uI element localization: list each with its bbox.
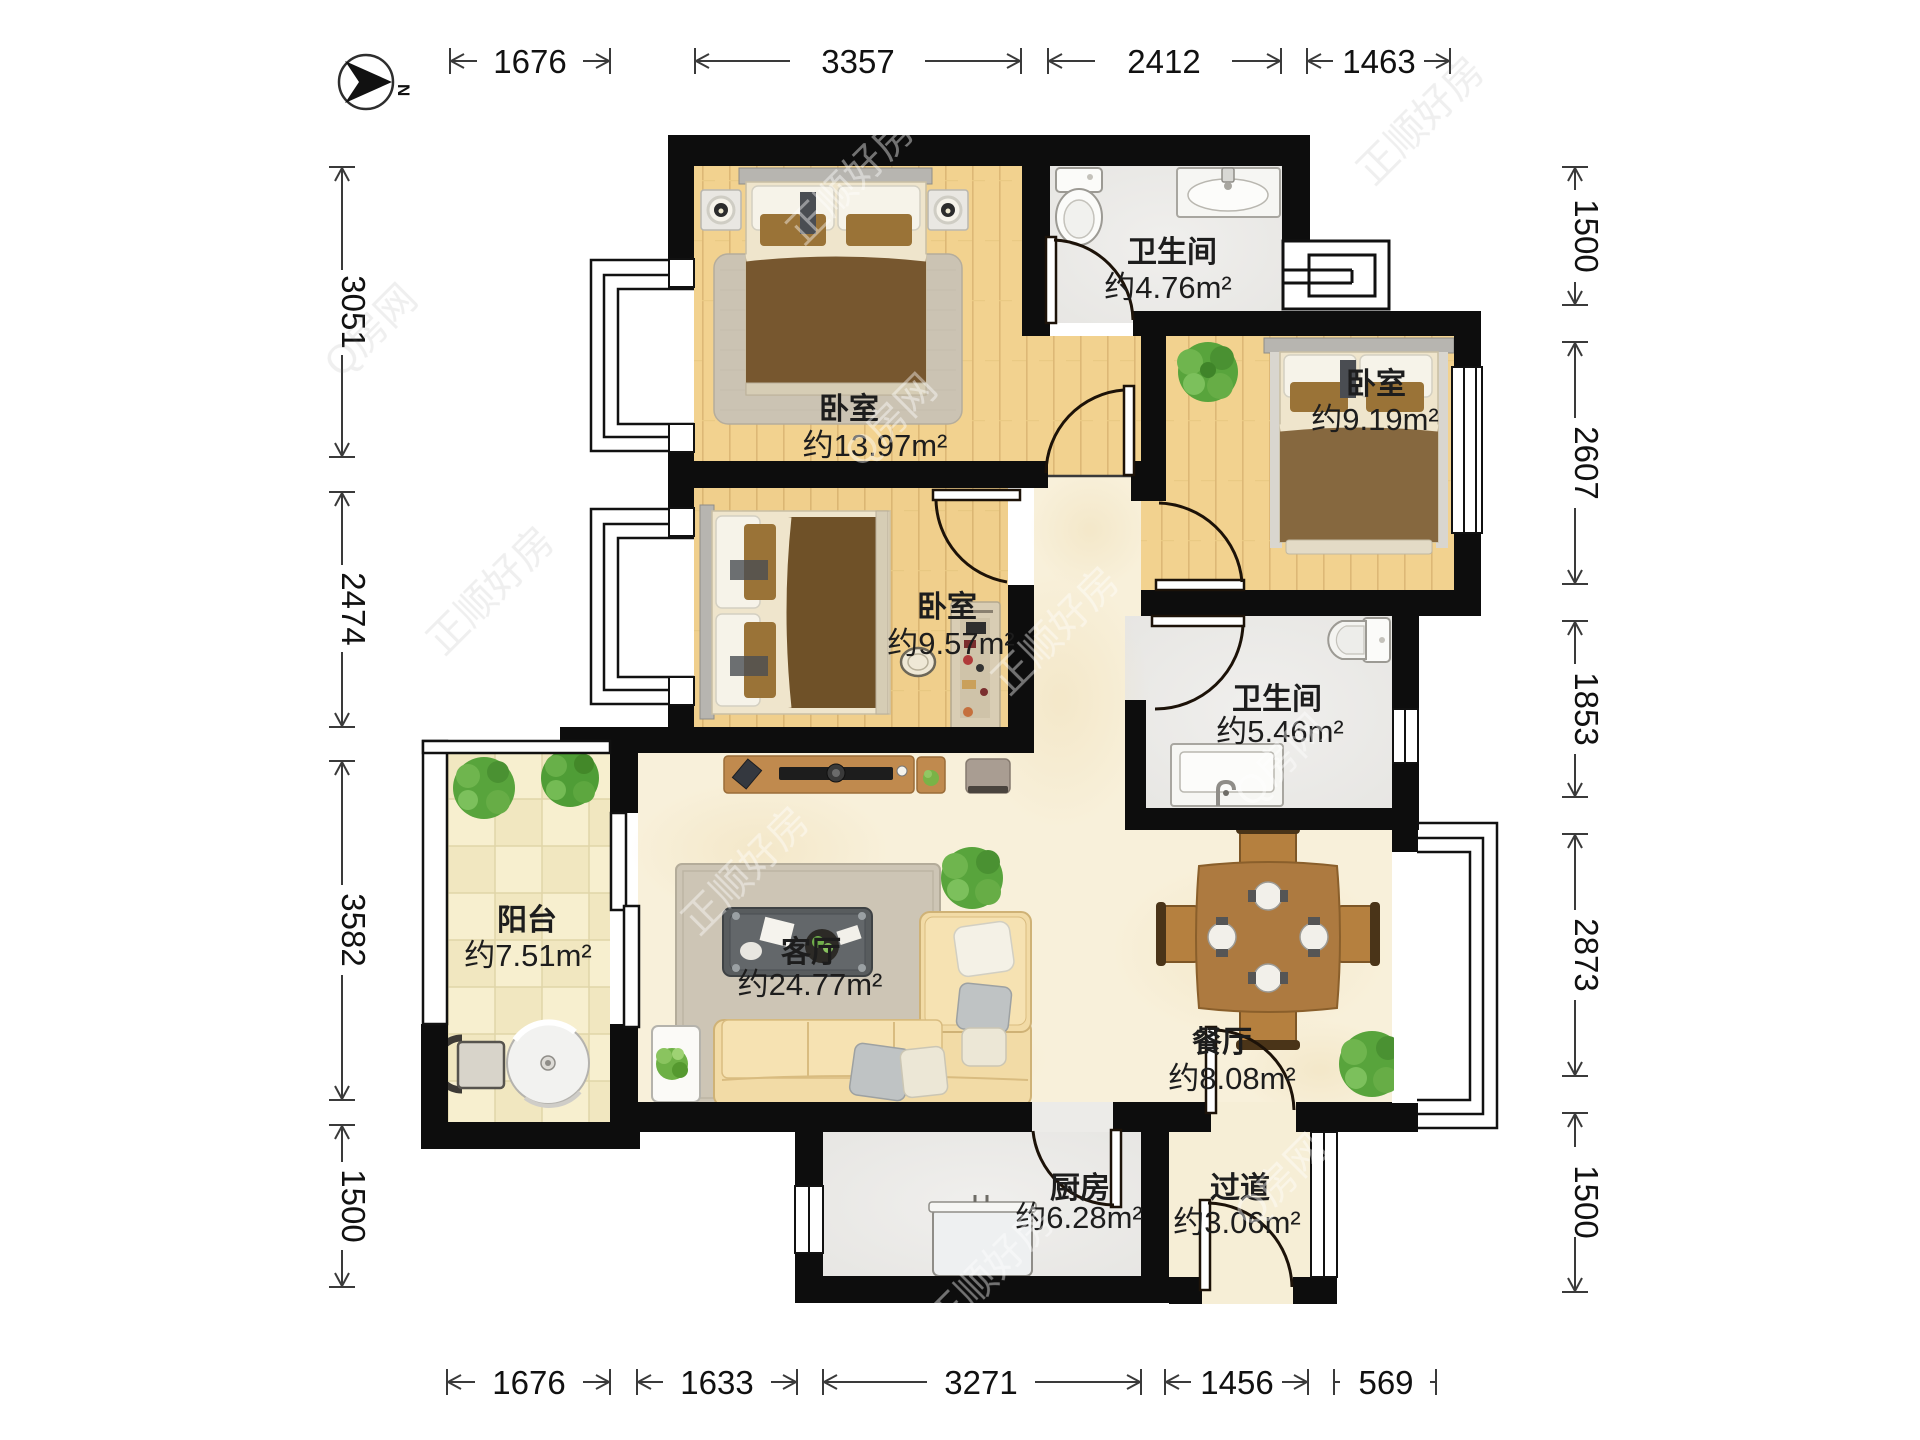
svg-text:1676: 1676 — [493, 43, 566, 80]
svg-text:1456: 1456 — [1200, 1364, 1273, 1401]
svg-text:2474: 2474 — [335, 572, 372, 645]
svg-text:1633: 1633 — [680, 1364, 753, 1401]
svg-text:3357: 3357 — [821, 43, 894, 80]
svg-text:约8.08m²: 约8.08m² — [1168, 1061, 1295, 1096]
svg-text:N: N — [394, 84, 413, 96]
svg-text:约24.77m²: 约24.77m² — [738, 967, 883, 1002]
svg-text:2607: 2607 — [1568, 426, 1605, 499]
svg-text:1676: 1676 — [492, 1364, 565, 1401]
svg-text:约9.57m²: 约9.57m² — [887, 626, 1014, 661]
svg-text:2412: 2412 — [1127, 43, 1200, 80]
svg-text:1463: 1463 — [1342, 43, 1415, 80]
svg-text:约9.19m²: 约9.19m² — [1311, 402, 1438, 437]
svg-text:3582: 3582 — [335, 893, 372, 966]
svg-text:卧室: 卧室 — [1346, 367, 1406, 401]
svg-text:约4.76m²: 约4.76m² — [1104, 270, 1231, 305]
svg-text:1500: 1500 — [1568, 1165, 1605, 1238]
svg-text:3271: 3271 — [944, 1364, 1017, 1401]
svg-text:卫生间: 卫生间 — [1127, 236, 1217, 269]
svg-text:1500: 1500 — [1568, 199, 1605, 272]
svg-text:卧室: 卧室 — [917, 590, 977, 624]
svg-text:阳台: 阳台 — [497, 903, 557, 937]
svg-text:569: 569 — [1358, 1364, 1413, 1401]
svg-text:客厅: 客厅 — [781, 935, 841, 969]
svg-text:1853: 1853 — [1568, 672, 1605, 745]
svg-text:2873: 2873 — [1568, 918, 1605, 991]
svg-text:约7.51m²: 约7.51m² — [464, 938, 591, 973]
svg-text:餐厅: 餐厅 — [1192, 1026, 1252, 1059]
svg-text:1500: 1500 — [335, 1169, 372, 1242]
